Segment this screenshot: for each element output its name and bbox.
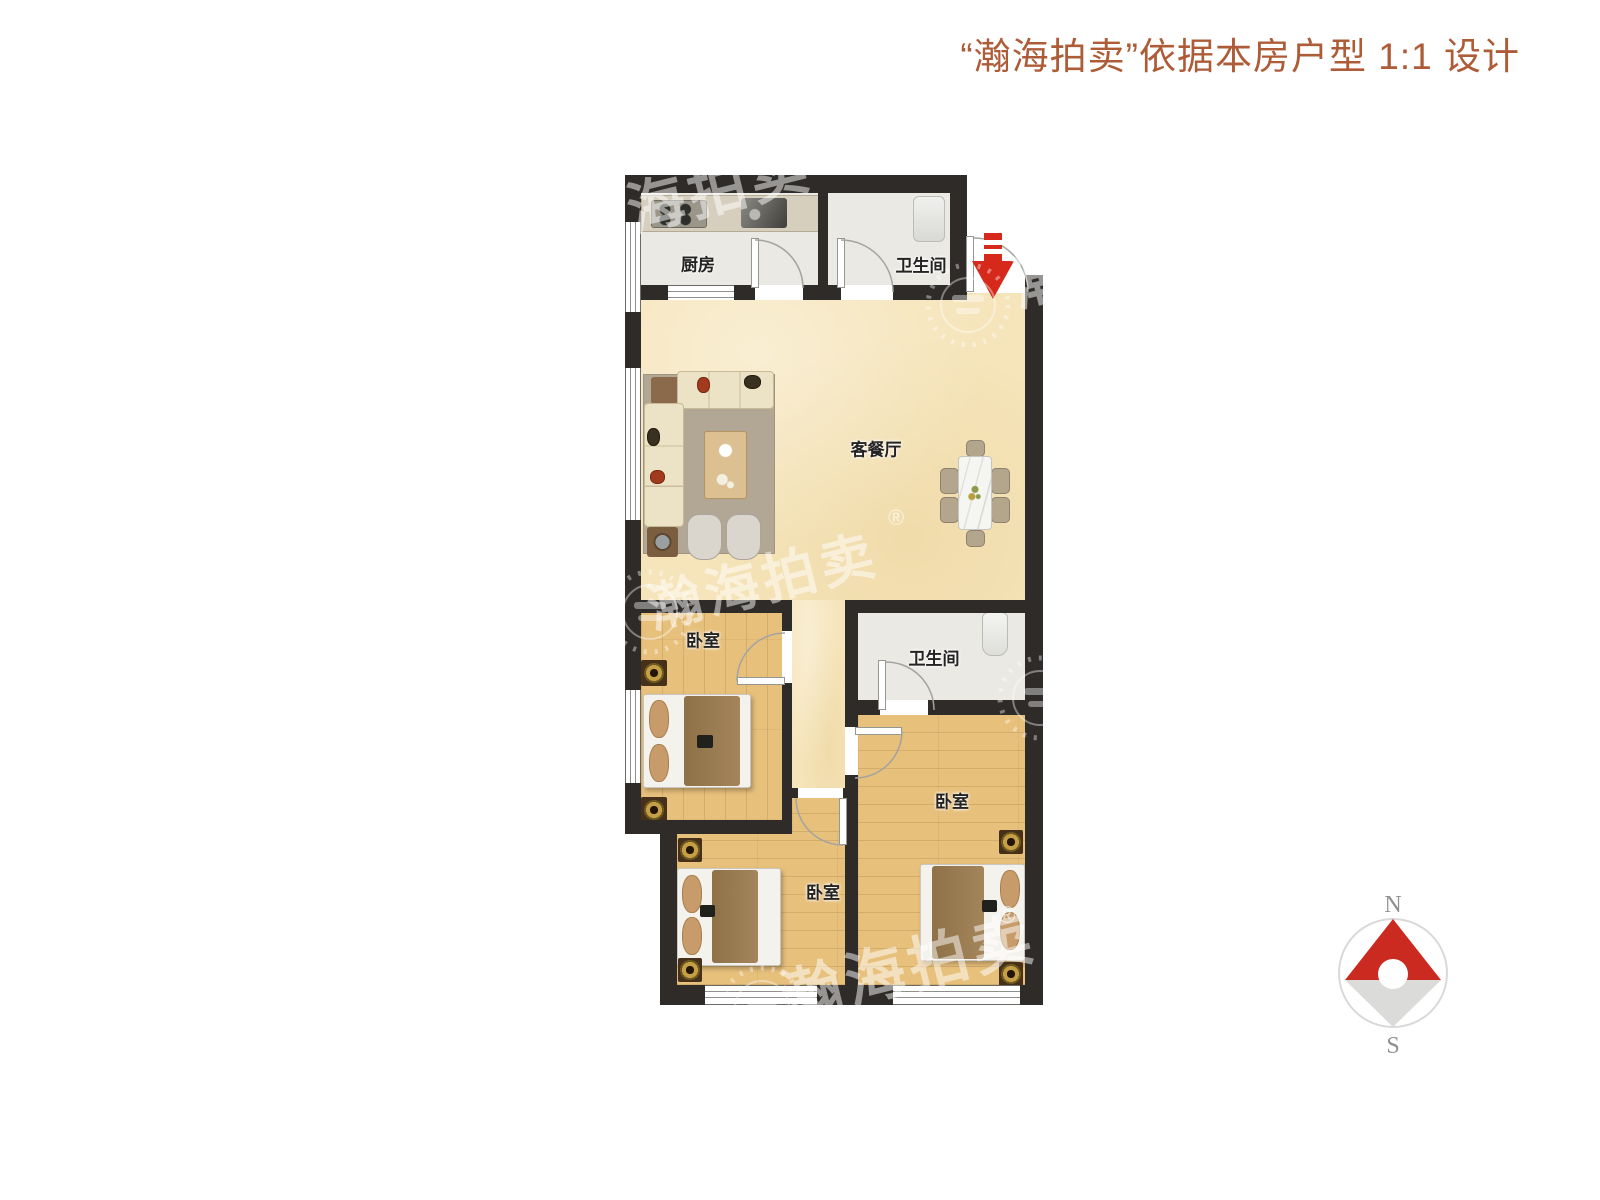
bed-pillow (649, 744, 669, 782)
bathtub (982, 612, 1008, 656)
brand-watermark: 瀚海拍卖 (1001, 176, 1274, 323)
room-label-kitchen: 厨房 (681, 251, 715, 276)
sofa (644, 403, 684, 527)
lamp-table (647, 527, 678, 557)
compass-hub (1378, 959, 1408, 989)
dining-chair (966, 530, 985, 547)
dining-table (958, 456, 992, 530)
dining-chair (966, 440, 985, 457)
registered-mark-watermark: ® (998, 902, 1016, 930)
bedroom-bottom-floor-nook (792, 798, 845, 832)
door-leaf (855, 727, 902, 735)
entry-arrow-stripe (984, 240, 1002, 245)
wall-segment (818, 193, 828, 285)
wall-segment (660, 832, 677, 1005)
wall-segment (1025, 275, 1043, 1005)
door-opening (798, 788, 843, 798)
nightstand (678, 838, 702, 862)
bed-pillow (682, 875, 702, 913)
page-title: “瀚海拍卖”依据本房户型 1:1 设计 (0, 26, 1520, 80)
sofa-pillow (647, 428, 660, 446)
door-leaf (878, 660, 886, 710)
bed-tray (700, 905, 715, 917)
door-opening (782, 631, 792, 683)
nightstand (641, 660, 667, 686)
wall-segment (625, 820, 792, 834)
window (668, 285, 734, 300)
door-leaf (751, 238, 759, 288)
sofa-pillow (650, 470, 665, 484)
nightstand (678, 958, 702, 982)
dining-chair (991, 468, 1010, 494)
door-opening (880, 700, 928, 715)
door-opening (755, 285, 803, 300)
entry-arrow-stripe (984, 249, 1002, 254)
compass-north-label: N (1384, 892, 1401, 918)
coffee-table (704, 431, 747, 499)
door-leaf (839, 798, 847, 845)
compass-south-label: S (1386, 1033, 1399, 1059)
door-opening (841, 285, 893, 300)
sofa-pillow (697, 377, 710, 393)
wall-segment (845, 600, 1025, 613)
compass-north-needle (1345, 919, 1441, 980)
bed-tray (697, 735, 713, 748)
wall-segment (950, 175, 967, 300)
door-leaf (737, 677, 785, 685)
wall-segment (845, 600, 858, 715)
registered-mark-watermark: ® (888, 505, 904, 531)
side-table (651, 377, 680, 404)
floor-plan-page: “瀚海拍卖”依据本房户型 1:1 设计 (0, 0, 1600, 1200)
hallway-floor (792, 600, 845, 790)
nightstand (999, 830, 1023, 854)
window (625, 690, 641, 783)
entry-door-leaf (966, 236, 974, 292)
door-leaf (837, 238, 845, 288)
room-label-bathroom-middle: 卫生间 (909, 645, 960, 670)
dining-chair (991, 497, 1010, 523)
room-label-living-dining: 客餐厅 (851, 436, 902, 461)
compass: N S (1339, 892, 1447, 1059)
bed-pillow (682, 917, 702, 955)
room-label-bedroom-right: 卧室 (935, 788, 969, 813)
shower-fixture (913, 196, 945, 242)
room-label-bathroom-top: 卫生间 (896, 252, 947, 277)
dining-chair (940, 468, 959, 494)
compass-ring (1339, 919, 1447, 1027)
dining-chair (940, 497, 959, 523)
sofa-pillow (744, 375, 761, 389)
window (625, 368, 641, 520)
compass-south-needle (1345, 980, 1441, 1027)
bed-blanket (712, 870, 758, 963)
room-label-bedroom-bottom: 卧室 (806, 879, 840, 904)
bed-pillow (649, 700, 669, 738)
wall-segment (845, 700, 1025, 715)
